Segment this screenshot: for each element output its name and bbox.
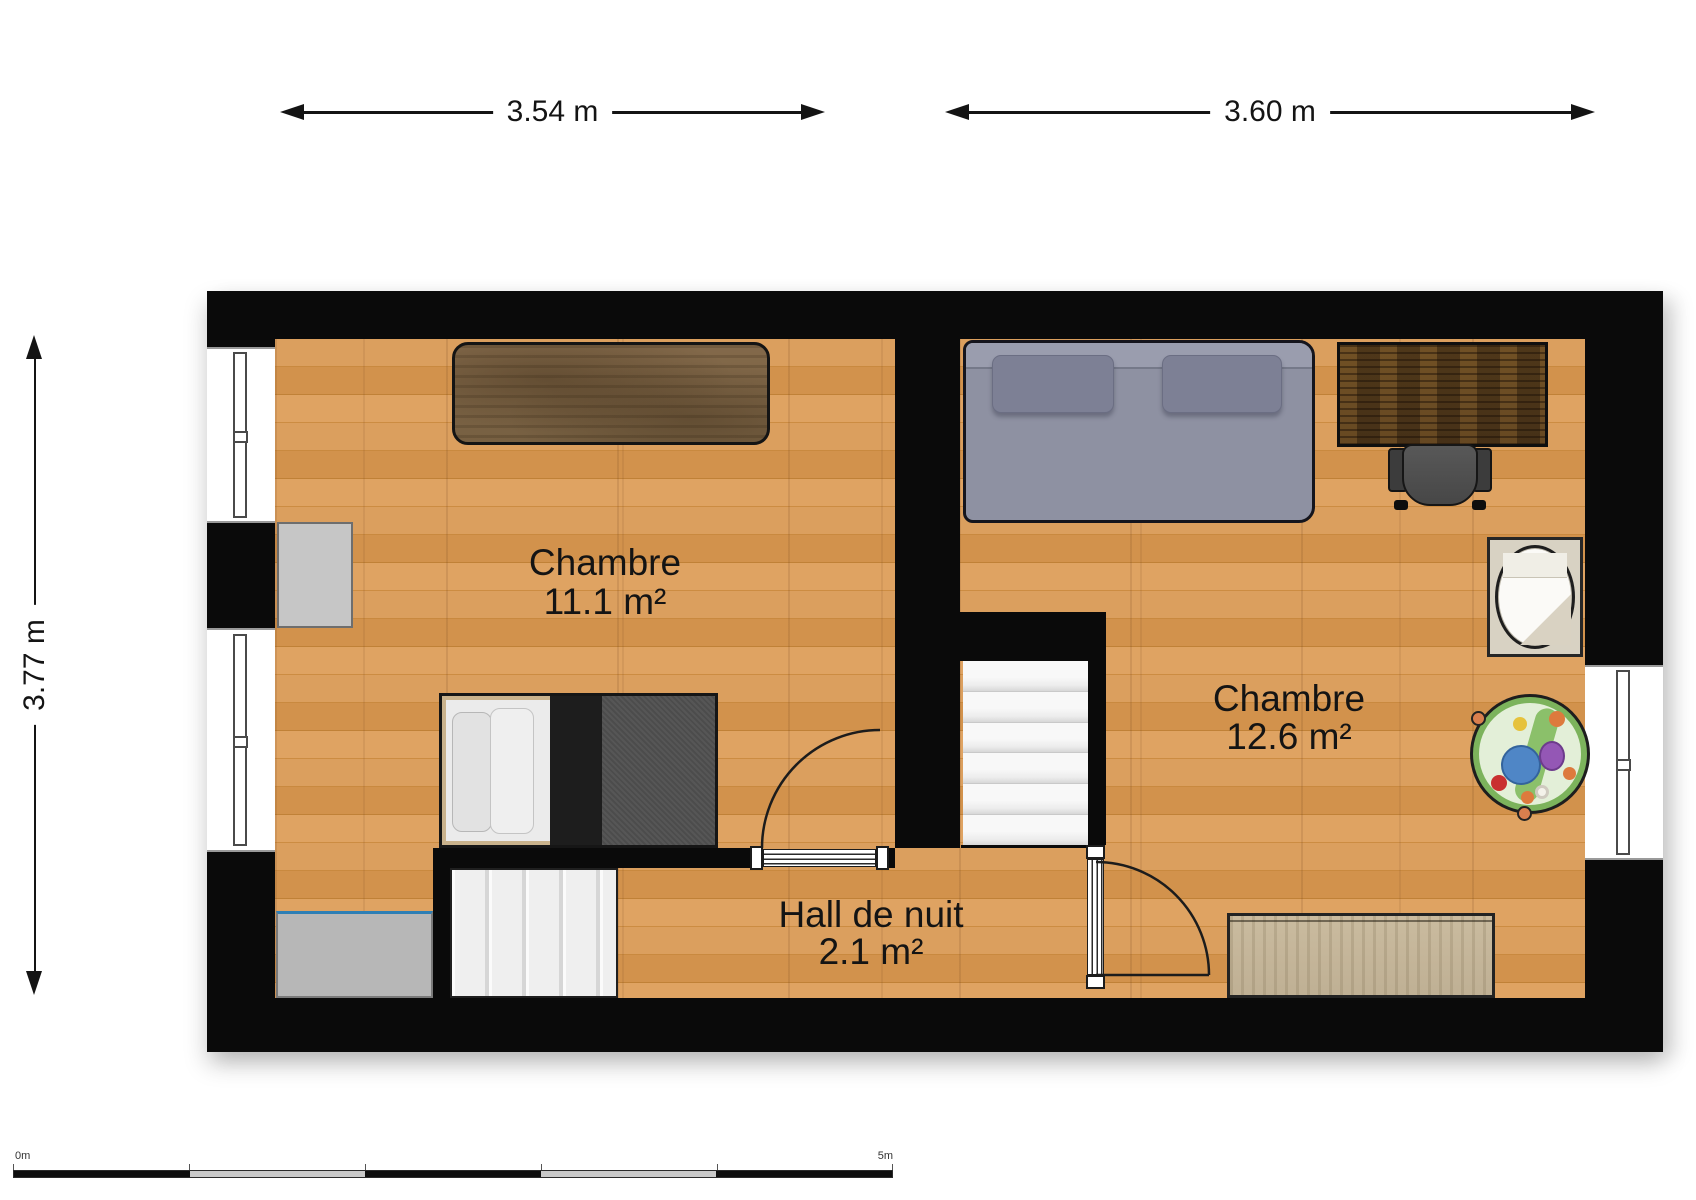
dimension-overall-height: 3.77 m [22, 335, 48, 995]
dresser-bottom-left [276, 911, 433, 998]
toy-red-dot [1491, 775, 1507, 791]
wall-segment [888, 848, 895, 868]
stair-opening-edge [961, 845, 1088, 848]
scale-segment [14, 1171, 190, 1177]
crib-blanket-fold [1499, 549, 1571, 645]
scale-segment [716, 1171, 892, 1177]
crib-mattress [1498, 548, 1572, 646]
toy-orange-dot [1549, 711, 1565, 727]
chair-seat [1402, 444, 1478, 506]
arrow-right-icon [1571, 104, 1595, 120]
stair-tread [963, 752, 1088, 783]
arrow-right-icon [801, 104, 825, 120]
hall-name: Hall de nuit [778, 894, 963, 936]
arrow-up-icon [26, 335, 42, 359]
blanket-fold [550, 696, 602, 845]
window-frame [1616, 670, 1630, 855]
window-crossbar [233, 736, 248, 748]
sideboard-edge [1230, 920, 1492, 922]
stair-tread [963, 814, 1088, 845]
scale-bar-track [13, 1170, 893, 1178]
window-crossbar [233, 431, 248, 443]
dimension-label: 3.54 m [493, 95, 613, 129]
dimension-room1-width: 3.54 m [280, 100, 825, 124]
door-sill-hall-room2 [1087, 859, 1104, 975]
mat-tab [1517, 806, 1532, 821]
door-sill-room1-hall [763, 849, 876, 867]
scale-bar: 0m 5m [13, 1150, 893, 1178]
stair-tread [963, 722, 1088, 753]
room1-name: Chambre [529, 542, 681, 584]
chair-foot [1394, 500, 1408, 510]
toy-purple [1539, 741, 1565, 771]
wall-stairwell-right [1088, 661, 1106, 845]
pillow [452, 712, 492, 832]
floorplan-page: 3.54 m 3.60 m 3.77 m [0, 0, 1696, 1200]
wardrobe [450, 868, 618, 998]
room2-area: 12.6 m² [1226, 716, 1351, 758]
pillow [992, 355, 1114, 413]
stair-tread [963, 661, 1088, 691]
window-frame [233, 352, 247, 518]
wall-divider-rooms [895, 339, 960, 848]
staircase [963, 661, 1088, 845]
single-bed [439, 693, 718, 848]
wall-stairwell-top [958, 612, 1106, 661]
arrow-left-icon [280, 104, 304, 120]
scale-segment [541, 1171, 717, 1177]
wall-room1-hall [433, 848, 762, 868]
hall-area: 2.1 m² [819, 931, 924, 973]
window-crossbar [1616, 759, 1631, 771]
dimension-room2-width: 3.60 m [945, 100, 1595, 124]
desk-chair [1388, 444, 1492, 510]
stair-tread [963, 783, 1088, 814]
wall-stub [433, 868, 450, 998]
door-jamb [1086, 845, 1105, 859]
window-right [1585, 665, 1663, 860]
arrow-down-icon [26, 971, 42, 995]
desk-room1 [452, 342, 770, 445]
toy-orange-dot [1521, 791, 1534, 804]
door-jamb [876, 846, 889, 870]
double-bed [963, 340, 1315, 523]
baby-crib [1487, 537, 1583, 657]
scale-start-label: 0m [15, 1150, 30, 1162]
pillow [1162, 355, 1282, 413]
room2-name: Chambre [1213, 678, 1365, 720]
wall-top [207, 291, 1663, 339]
stair-tread [963, 691, 1088, 722]
window-left-upper [207, 347, 275, 523]
duvet [602, 696, 715, 845]
dimension-label: 3.77 m [18, 605, 52, 725]
mat-tab [1471, 711, 1486, 726]
toy-blue-circle [1501, 745, 1541, 785]
toy-yellow-dot [1513, 717, 1527, 731]
pillow [490, 708, 534, 834]
arrow-left-icon [945, 104, 969, 120]
toy-orange-dot [1563, 767, 1576, 780]
door-jamb [750, 846, 763, 870]
door-jamb [1086, 975, 1105, 989]
play-mat [1473, 697, 1587, 811]
chair-foot [1472, 500, 1486, 510]
scale-segment [365, 1171, 541, 1177]
dimension-label: 3.60 m [1210, 95, 1330, 129]
floor-plan: Chambre 11.1 m² Chambre 12.6 m² Hall de … [207, 291, 1663, 1052]
window-frame [233, 634, 247, 846]
scale-segment [190, 1171, 366, 1177]
room1-area: 11.1 m² [544, 581, 667, 623]
cabinet-left-wall [277, 522, 353, 628]
sideboard-room2 [1227, 913, 1495, 998]
window-left-lower [207, 628, 275, 852]
wall-bottom [207, 998, 1663, 1052]
toy-ring [1535, 785, 1549, 799]
desk-room2 [1337, 342, 1548, 447]
scale-end-label: 5m [878, 1150, 893, 1162]
